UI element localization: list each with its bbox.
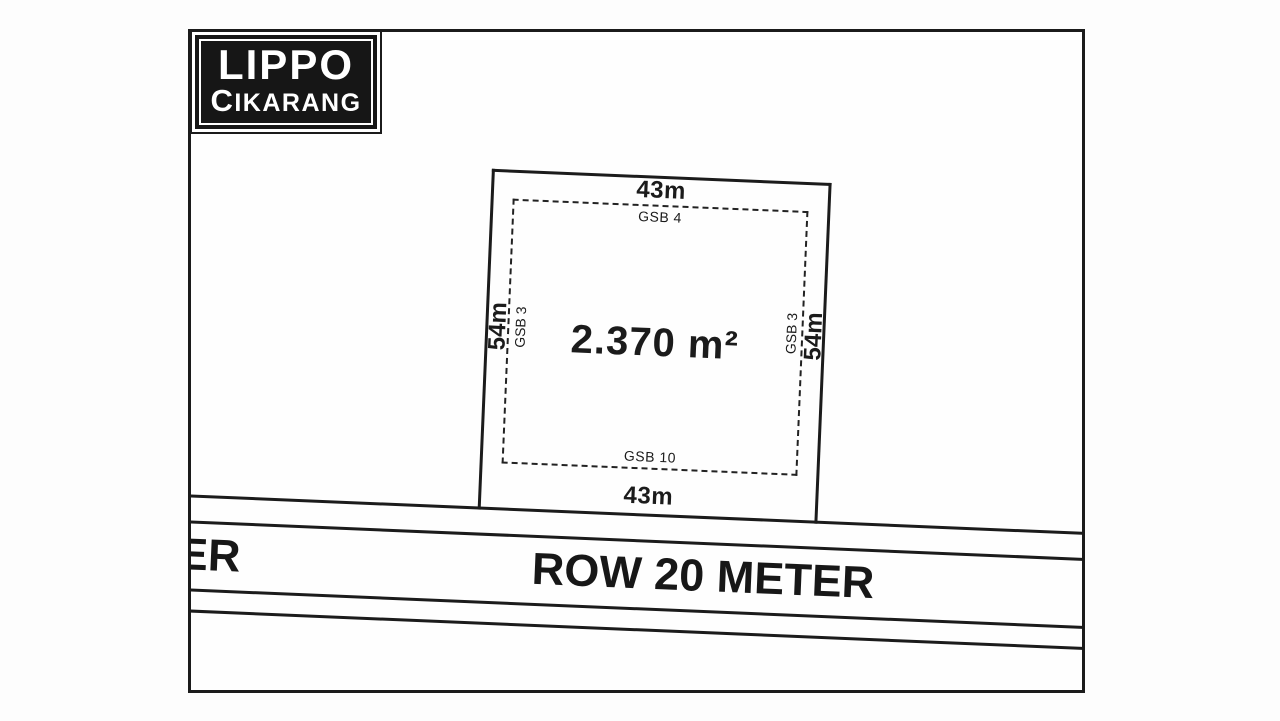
logo-black-panel: LIPPO CIKARANG <box>195 35 377 129</box>
plot-left-depth-label: 54m <box>483 302 513 351</box>
logo-text-cikarang: CIKARANG <box>207 87 365 117</box>
lippo-cikarang-logo: LIPPO CIKARANG <box>190 30 382 134</box>
logo-text-lippo: LIPPO <box>207 43 365 87</box>
gsb-right-label: GSB 3 <box>782 313 800 355</box>
gsb-left-label: GSB 3 <box>511 306 529 348</box>
road-edge-line-bottom <box>188 606 1085 653</box>
logo-inner-border: LIPPO CIKARANG <box>199 39 373 125</box>
plot-right-depth-label: 54m <box>799 312 829 361</box>
site-plan-diagram: 43m GSB 4 2.370 m² GSB 10 43m 54m GSB 3 … <box>0 0 1280 721</box>
road-name-label-clipped: ER <box>188 528 242 583</box>
road-name-label: ROW 20 METER <box>531 543 875 609</box>
